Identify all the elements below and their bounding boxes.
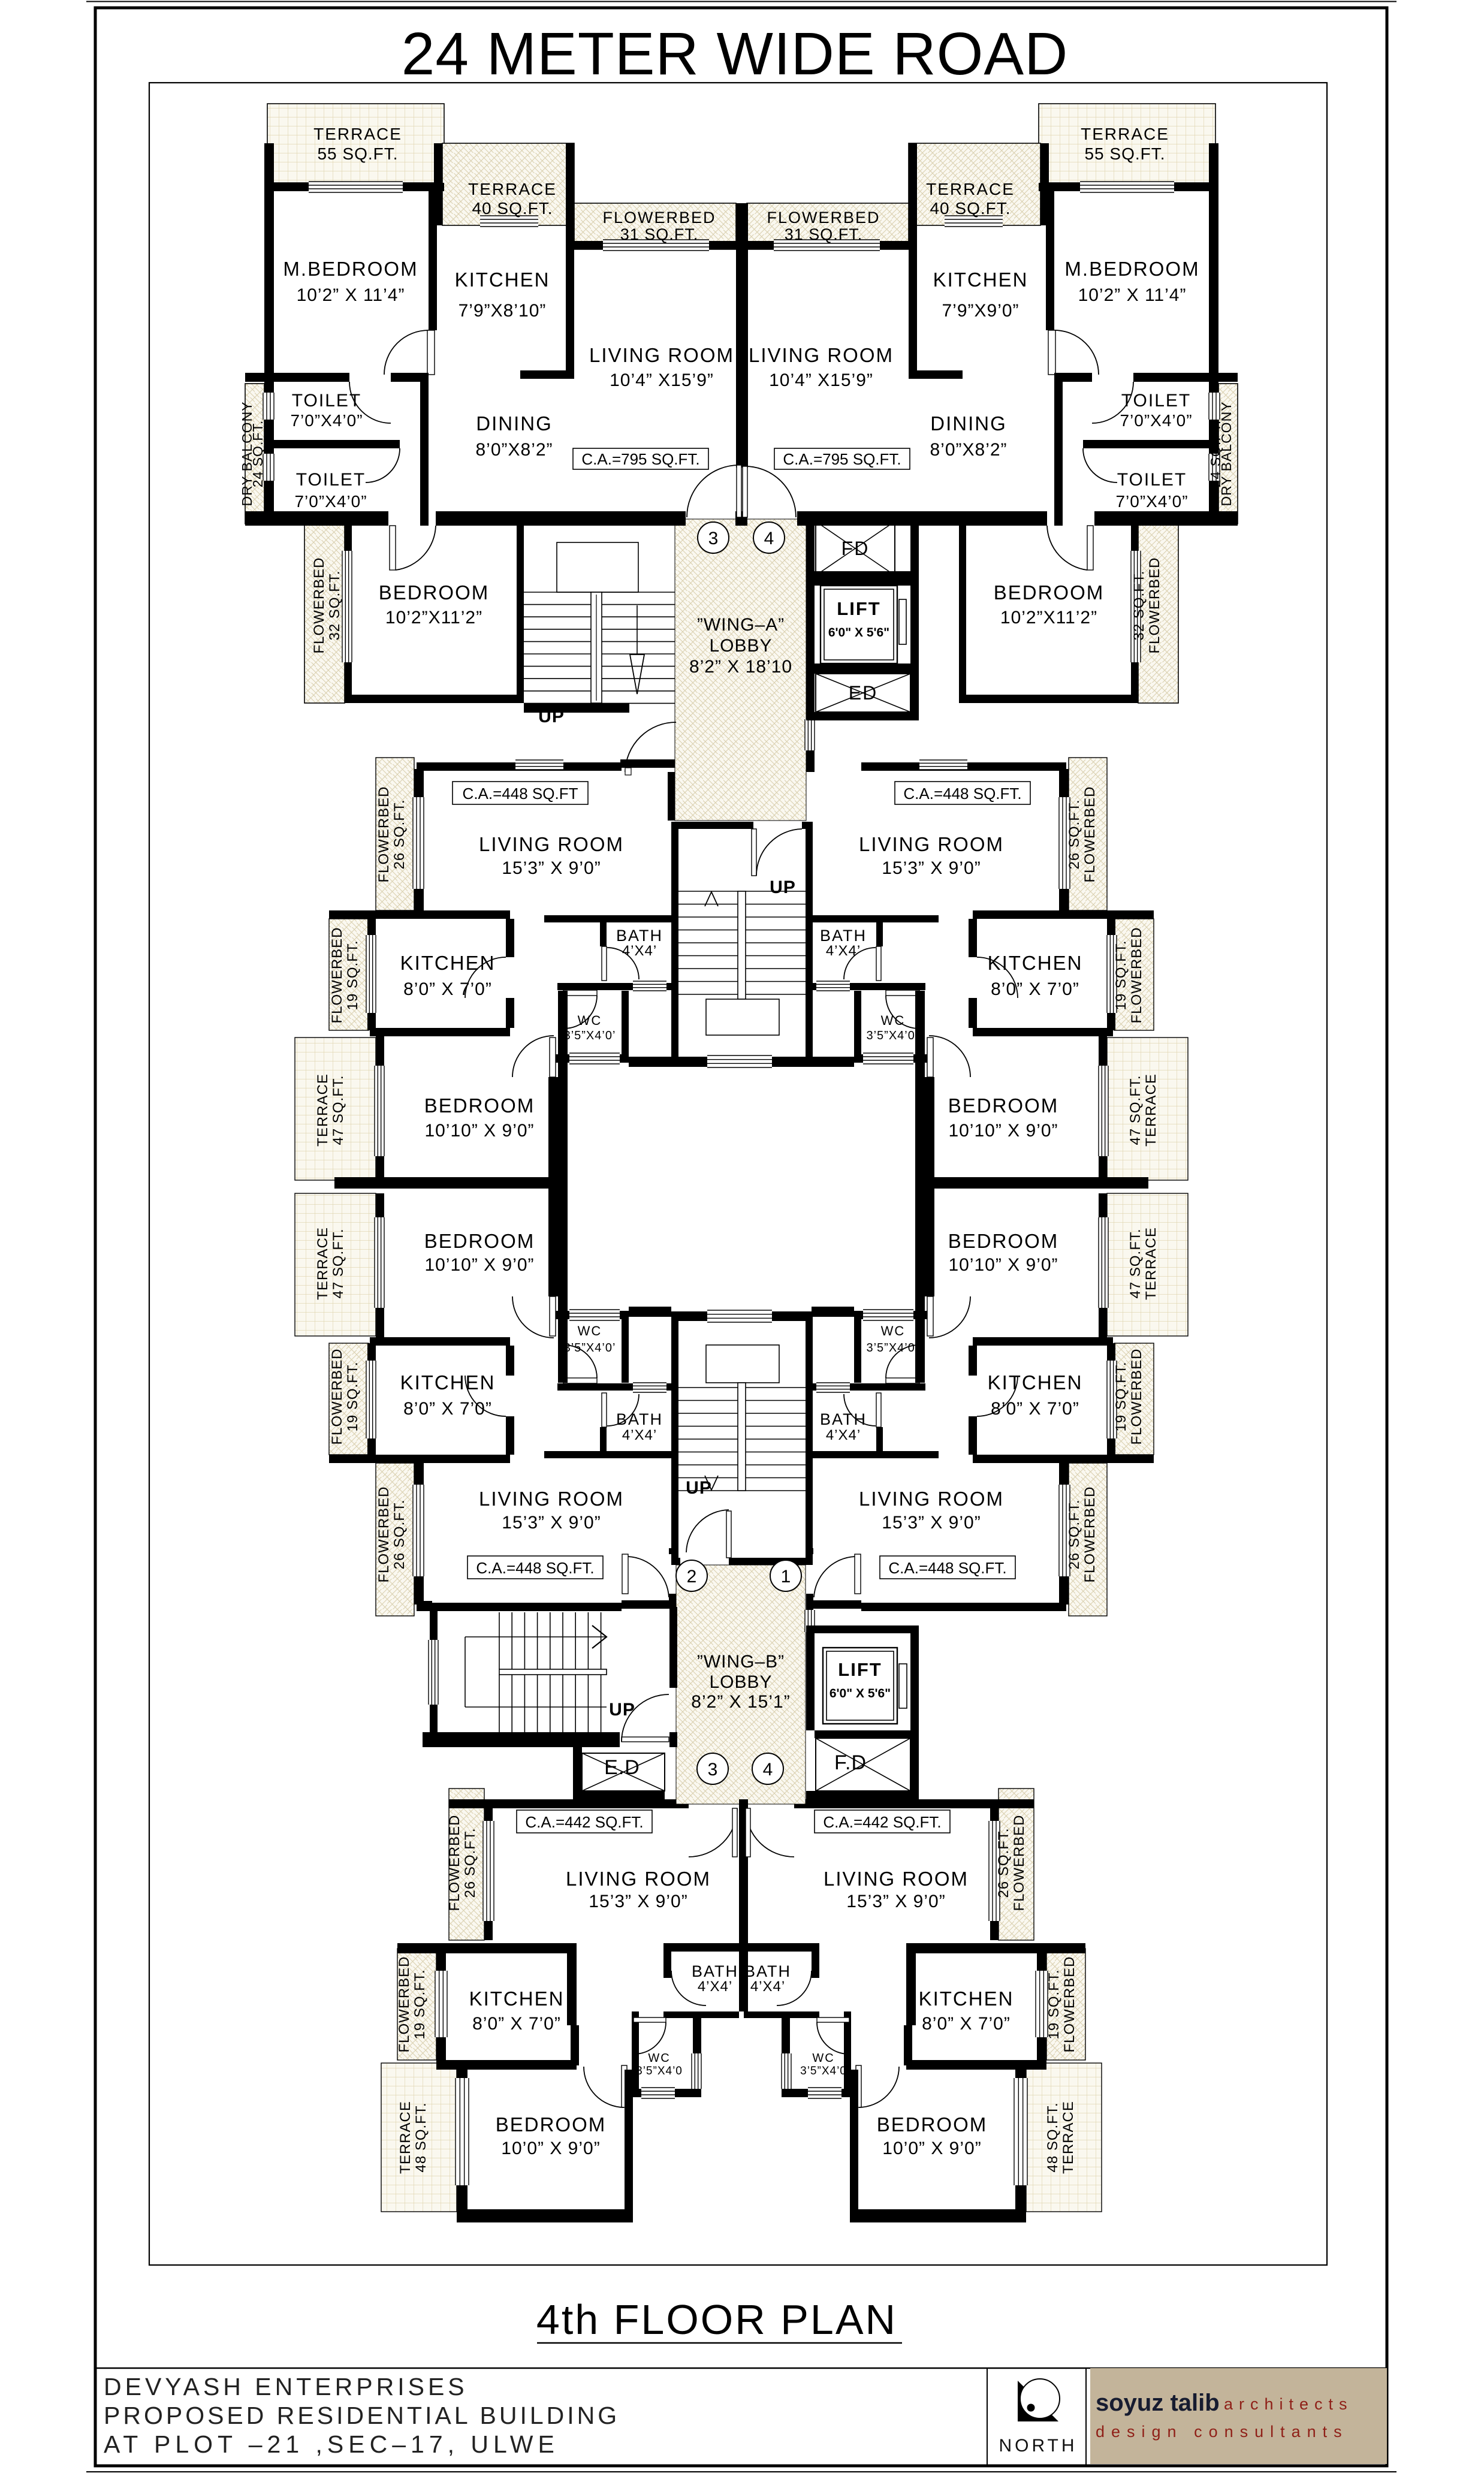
svg-text:10’4” X15’9”: 10’4” X15’9” — [769, 370, 873, 390]
svg-text:LOBBY: LOBBY — [709, 636, 772, 656]
svg-text:26 SQ.FT.: 26 SQ.FT. — [462, 1827, 478, 1898]
svg-text:C.A.=448 SQ.FT.: C.A.=448 SQ.FT. — [888, 1559, 1006, 1577]
svg-text:FLOWERBED: FLOWERBED — [396, 1956, 412, 2052]
svg-text:7’9”X8’10”: 7’9”X8’10” — [459, 301, 547, 321]
svg-text:47 SQ.FT.: 47 SQ.FT. — [330, 1075, 346, 1145]
svg-text:10’2”X11’2”: 10’2”X11’2” — [1000, 608, 1097, 628]
svg-text:TERRACE: TERRACE — [313, 125, 402, 143]
svg-text:LIVING ROOM: LIVING ROOM — [589, 344, 734, 366]
svg-text:26 SQ.FT.: 26 SQ.FT. — [391, 1499, 408, 1569]
svg-text:26 SQ.FT.: 26 SQ.FT. — [1066, 1499, 1082, 1569]
svg-text:KITCHEN: KITCHEN — [933, 269, 1028, 291]
svg-text:47 SQ.FT.: 47 SQ.FT. — [1127, 1228, 1144, 1298]
svg-text:TERRACE: TERRACE — [926, 180, 1015, 198]
svg-text:7’9”X9’0”: 7’9”X9’0” — [942, 301, 1019, 321]
svg-text:LIFT: LIFT — [838, 1659, 882, 1680]
svg-text:UP: UP — [770, 877, 796, 897]
svg-text:FLOWERBED: FLOWERBED — [1129, 927, 1145, 1023]
svg-text:WC: WC — [881, 1323, 906, 1338]
svg-text:15’3” X 9’0”: 15’3” X 9’0” — [882, 1513, 981, 1533]
svg-text:7’0”X4’0”: 7’0”X4’0” — [1120, 411, 1192, 430]
svg-text:15’3” X 9’0”: 15’3” X 9’0” — [589, 1892, 687, 1911]
svg-text:FLOWERBED: FLOWERBED — [376, 1486, 392, 1582]
svg-text:KITCHEN: KITCHEN — [988, 952, 1083, 974]
svg-text:8’2” X 18’10: 8’2” X 18’10 — [689, 657, 792, 677]
svg-text:PROPOSED RESIDENTIAL BUILDIN: PROPOSED RESIDENTIAL BUILDING — [104, 2402, 620, 2429]
svg-text:BEDROOM: BEDROOM — [948, 1230, 1059, 1252]
svg-text:LIVING ROOM: LIVING ROOM — [479, 1488, 624, 1510]
svg-text:55 SQ.FT.: 55 SQ.FT. — [1084, 144, 1165, 163]
svg-text:DINING: DINING — [476, 412, 553, 435]
svg-text:40 SQ.FT.: 40 SQ.FT. — [472, 199, 553, 218]
svg-text:BEDROOM: BEDROOM — [379, 581, 490, 604]
svg-text:KITCHEN: KITCHEN — [469, 1988, 565, 2010]
svg-text:TERRACE: TERRACE — [468, 180, 557, 198]
svg-text:4’X4’: 4’X4’ — [622, 943, 657, 959]
svg-text:19 SQ.FT.: 19 SQ.FT. — [1046, 1969, 1062, 2039]
svg-text:8’0” X 7’0”: 8’0” X 7’0” — [403, 979, 492, 999]
svg-text:WC: WC — [881, 1013, 906, 1028]
svg-text:47 SQ.FT.: 47 SQ.FT. — [1127, 1075, 1144, 1145]
svg-text:1: 1 — [781, 1567, 791, 1587]
svg-text:C.A.=442 SQ.FT.: C.A.=442 SQ.FT. — [525, 1813, 643, 1831]
svg-text:10’10” X 9’0”: 10’10” X 9’0” — [424, 1255, 534, 1275]
svg-text:47 SQ.FT.: 47 SQ.FT. — [330, 1228, 346, 1298]
svg-text:19 SQ.FT.: 19 SQ.FT. — [1113, 940, 1129, 1010]
svg-text:32 SQ.FT.: 32 SQ.FT. — [327, 570, 343, 640]
svg-text:48 SQ.FT.: 48 SQ.FT. — [413, 2102, 429, 2172]
svg-text:26 SQ.FT.: 26 SQ.FT. — [996, 1827, 1012, 1898]
svg-text:15’3” X 9’0”: 15’3” X 9’0” — [882, 858, 981, 878]
svg-text:BEDROOM: BEDROOM — [424, 1094, 535, 1117]
svg-text:7’0”X4’0”: 7’0”X4’0” — [1115, 492, 1188, 511]
svg-text:WC: WC — [578, 1323, 602, 1338]
svg-text:10’2” X 11’4”: 10’2” X 11’4” — [1078, 285, 1187, 305]
svg-text:KITCHEN: KITCHEN — [400, 1371, 496, 1394]
svg-text:TERRACE: TERRACE — [1060, 2101, 1076, 2174]
svg-text:FLOWERBED: FLOWERBED — [767, 209, 880, 227]
svg-text:TOILET: TOILET — [296, 470, 366, 490]
svg-text:10’2” X 11’4”: 10’2” X 11’4” — [297, 285, 405, 305]
svg-text:TERRACE: TERRACE — [315, 1227, 331, 1300]
svg-text:BATH: BATH — [820, 927, 867, 945]
svg-text:LIVING ROOM: LIVING ROOM — [824, 1868, 969, 1890]
svg-text:FLOWERBED: FLOWERBED — [376, 786, 392, 882]
svg-text:48 SQ.FT.: 48 SQ.FT. — [1045, 2102, 1061, 2172]
svg-text:3’5”X4’0”: 3’5”X4’0” — [866, 1029, 919, 1042]
svg-text:C.A.=442 SQ.FT.: C.A.=442 SQ.FT. — [823, 1813, 941, 1831]
svg-text:TERRACE: TERRACE — [1143, 1227, 1159, 1300]
svg-text:BEDROOM: BEDROOM — [877, 2113, 988, 2136]
svg-text:BEDROOM: BEDROOM — [424, 1230, 535, 1252]
svg-text:8’0” X 7’0”: 8’0” X 7’0” — [922, 2014, 1011, 2034]
svg-text:FLOWERBED: FLOWERBED — [1147, 557, 1163, 653]
svg-text:LIVING ROOM: LIVING ROOM — [859, 833, 1004, 855]
svg-text:architects: architects — [1224, 2395, 1353, 2413]
svg-text:FLOWERBED: FLOWERBED — [1082, 786, 1098, 882]
svg-text:31 SQ.FT.: 31 SQ.FT. — [620, 225, 699, 243]
svg-text:2: 2 — [687, 1567, 697, 1587]
svg-text:3’5”X4’0”: 3’5”X4’0” — [866, 1341, 919, 1355]
svg-text:6'0" X 5'6": 6'0" X 5'6" — [830, 1687, 891, 1700]
svg-text:3’5”X4’0: 3’5”X4’0 — [800, 2065, 847, 2077]
svg-text:ED: ED — [849, 682, 877, 704]
svg-text:WC: WC — [578, 1013, 602, 1028]
svg-text:BATH: BATH — [744, 1962, 791, 1980]
svg-text:AT PLOT –21 ,SEC–17, ULWE: AT PLOT –21 ,SEC–17, ULWE — [104, 2430, 559, 2458]
svg-text:7’0”X4’0”: 7’0”X4’0” — [294, 492, 367, 511]
svg-text:4’X4’: 4’X4’ — [826, 1427, 861, 1443]
svg-text:FLOWERBED: FLOWERBED — [311, 557, 327, 653]
svg-text:8’0”X8’2”: 8’0”X8’2” — [475, 440, 553, 460]
svg-text:8’0” X 7’0”: 8’0” X 7’0” — [472, 2014, 561, 2034]
svg-text:24 SQ.FT.: 24 SQ.FT. — [250, 420, 266, 488]
svg-text:7’0”X4’0”: 7’0”X4’0” — [290, 411, 363, 430]
svg-text:10’0” X 9’0”: 10’0” X 9’0” — [882, 2139, 981, 2158]
svg-text:UP: UP — [538, 707, 565, 726]
svg-text:M.BEDROOM: M.BEDROOM — [1064, 258, 1199, 280]
svg-text:19 SQ.FT.: 19 SQ.FT. — [1113, 1361, 1129, 1431]
svg-text:8’0” X 7’0”: 8’0” X 7’0” — [991, 979, 1079, 999]
svg-text:WC: WC — [648, 2052, 670, 2065]
svg-text:TOILET: TOILET — [1121, 391, 1191, 411]
svg-text:15’3” X 9’0”: 15’3” X 9’0” — [502, 1513, 601, 1533]
svg-text:26 SQ.FT.: 26 SQ.FT. — [391, 799, 408, 869]
svg-text:TERRACE: TERRACE — [315, 1073, 331, 1147]
svg-text:KITCHEN: KITCHEN — [919, 1988, 1014, 2010]
svg-text:19 SQ.FT.: 19 SQ.FT. — [345, 940, 361, 1010]
svg-text:3’5”X4’0’: 3’5”X4’0’ — [564, 1029, 616, 1042]
svg-text:BATH: BATH — [616, 927, 663, 945]
svg-text:24 METER WIDE ROAD: 24 METER WIDE ROAD — [402, 20, 1069, 88]
svg-text:4: 4 — [763, 1760, 773, 1780]
svg-text:E.D: E.D — [604, 1756, 640, 1779]
svg-text:3: 3 — [708, 1760, 718, 1780]
svg-text:KITCHEN: KITCHEN — [988, 1371, 1083, 1394]
svg-text:4’X4’: 4’X4’ — [826, 943, 861, 959]
svg-text:10’10” X 9’0”: 10’10” X 9’0” — [948, 1121, 1058, 1141]
svg-text:15’3” X 9’0”: 15’3” X 9’0” — [846, 1892, 945, 1911]
svg-text:10’2”X11’2”: 10’2”X11’2” — [385, 608, 482, 628]
svg-text:6'0" X 5'6": 6'0" X 5'6" — [828, 626, 889, 640]
svg-text:TERRACE: TERRACE — [1081, 125, 1169, 143]
svg-text:UP: UP — [609, 1700, 635, 1720]
svg-text:10’0” X 9’0”: 10’0” X 9’0” — [501, 2139, 600, 2158]
svg-text:BEDROOM: BEDROOM — [948, 1094, 1059, 1117]
svg-text:55 SQ.FT.: 55 SQ.FT. — [317, 144, 398, 163]
svg-text:BEDROOM: BEDROOM — [496, 2113, 607, 2136]
svg-text:TERRACE: TERRACE — [397, 2101, 414, 2174]
svg-text:FLOWERBED: FLOWERBED — [329, 1348, 345, 1444]
svg-text:31 SQ.FT.: 31 SQ.FT. — [785, 225, 863, 243]
svg-text:3: 3 — [708, 529, 719, 548]
svg-text:LIVING ROOM: LIVING ROOM — [859, 1488, 1004, 1510]
svg-text:4th FLOOR PLAN: 4th FLOOR PLAN — [536, 2296, 897, 2343]
svg-text:LIVING ROOM: LIVING ROOM — [749, 344, 894, 366]
svg-text:DINING: DINING — [930, 412, 1007, 435]
svg-text:4’X4’: 4’X4’ — [750, 1979, 785, 1995]
svg-text:FLOWERBED: FLOWERBED — [329, 927, 345, 1023]
svg-text:design consultants: design consultants — [1096, 2423, 1349, 2441]
svg-text:LOBBY: LOBBY — [709, 1672, 772, 1692]
svg-text:C.A.=795 SQ.FT.: C.A.=795 SQ.FT. — [783, 450, 901, 468]
svg-text:KITCHEN: KITCHEN — [455, 269, 550, 291]
svg-text:3’5”X4’0: 3’5”X4’0 — [636, 2065, 683, 2077]
svg-text:FD: FD — [841, 538, 870, 559]
svg-text:TOILET: TOILET — [292, 391, 361, 411]
svg-text:4: 4 — [764, 529, 774, 548]
svg-text:LIVING ROOM: LIVING ROOM — [479, 833, 624, 855]
svg-text:BATH: BATH — [616, 1410, 663, 1428]
svg-text:C.A.=448 SQ.FT.: C.A.=448 SQ.FT. — [903, 785, 1021, 803]
svg-text:soyuz talib: soyuz talib — [1096, 2390, 1220, 2416]
svg-text:M.BEDROOM: M.BEDROOM — [283, 258, 418, 280]
svg-text:LIFT: LIFT — [837, 598, 880, 619]
svg-text:8’0” X 7’0”: 8’0” X 7’0” — [403, 1399, 492, 1419]
svg-text:C.A.=448 SQ.FT.: C.A.=448 SQ.FT. — [476, 1559, 594, 1577]
svg-text:FLOWERBED: FLOWERBED — [1129, 1348, 1145, 1444]
svg-text:KITCHEN: KITCHEN — [400, 952, 496, 974]
svg-text:FLOWERBED: FLOWERBED — [1082, 1486, 1098, 1582]
svg-text:FLOWERBED: FLOWERBED — [1011, 1814, 1027, 1911]
svg-text:TERRACE: TERRACE — [1143, 1073, 1159, 1147]
svg-text:DEVYASH ENTERPRISES: DEVYASH ENTERPRISES — [104, 2373, 468, 2400]
svg-text:BEDROOM: BEDROOM — [994, 581, 1105, 604]
svg-text:NORTH: NORTH — [999, 2436, 1077, 2456]
svg-text:10’4” X15’9”: 10’4” X15’9” — [610, 370, 714, 390]
svg-text:4’X4’: 4’X4’ — [698, 1979, 732, 1995]
svg-text:8’2” X 15’1”: 8’2” X 15’1” — [691, 1692, 790, 1712]
svg-text:C.A.=795 SQ.FT.: C.A.=795 SQ.FT. — [581, 450, 699, 468]
svg-text:BATH: BATH — [820, 1410, 867, 1428]
svg-text:C.A.=448 SQ.FT: C.A.=448 SQ.FT — [463, 785, 578, 803]
svg-text:10’10” X 9’0”: 10’10” X 9’0” — [424, 1121, 534, 1141]
svg-text:4’X4’: 4’X4’ — [622, 1427, 657, 1443]
svg-text:FLOWERBED: FLOWERBED — [602, 209, 716, 227]
svg-text:8’0”X8’2”: 8’0”X8’2” — [930, 440, 1007, 460]
svg-text:26 SQ.FT.: 26 SQ.FT. — [1066, 799, 1082, 869]
svg-text:”WING–B”: ”WING–B” — [697, 1652, 785, 1672]
svg-text:32 SQ.FT.: 32 SQ.FT. — [1131, 570, 1147, 640]
svg-text:WC: WC — [812, 2052, 834, 2065]
svg-text:24 SQ.FT.: 24 SQ.FT. — [1208, 420, 1223, 488]
svg-text:FLOWERBED: FLOWERBED — [447, 1814, 463, 1911]
svg-text:19 SQ.FT.: 19 SQ.FT. — [412, 1969, 428, 2039]
svg-text:3’5”X4’0’: 3’5”X4’0’ — [564, 1341, 616, 1355]
svg-text:19 SQ.FT.: 19 SQ.FT. — [345, 1361, 361, 1431]
svg-text:UP: UP — [686, 1478, 712, 1498]
svg-text:15’3” X 9’0”: 15’3” X 9’0” — [502, 858, 601, 878]
svg-text:40 SQ.FT.: 40 SQ.FT. — [930, 199, 1011, 218]
svg-text:TOILET: TOILET — [1117, 470, 1187, 490]
svg-text:F.D: F.D — [834, 1751, 867, 1774]
svg-text:LIVING ROOM: LIVING ROOM — [566, 1868, 711, 1890]
svg-text:”WING–A”: ”WING–A” — [697, 615, 785, 635]
svg-text:BATH: BATH — [692, 1962, 738, 1980]
svg-text:10’10” X 9’0”: 10’10” X 9’0” — [948, 1255, 1058, 1275]
svg-text:FLOWERBED: FLOWERBED — [1061, 1956, 1078, 2052]
svg-text:8’0” X 7’0”: 8’0” X 7’0” — [991, 1399, 1079, 1419]
